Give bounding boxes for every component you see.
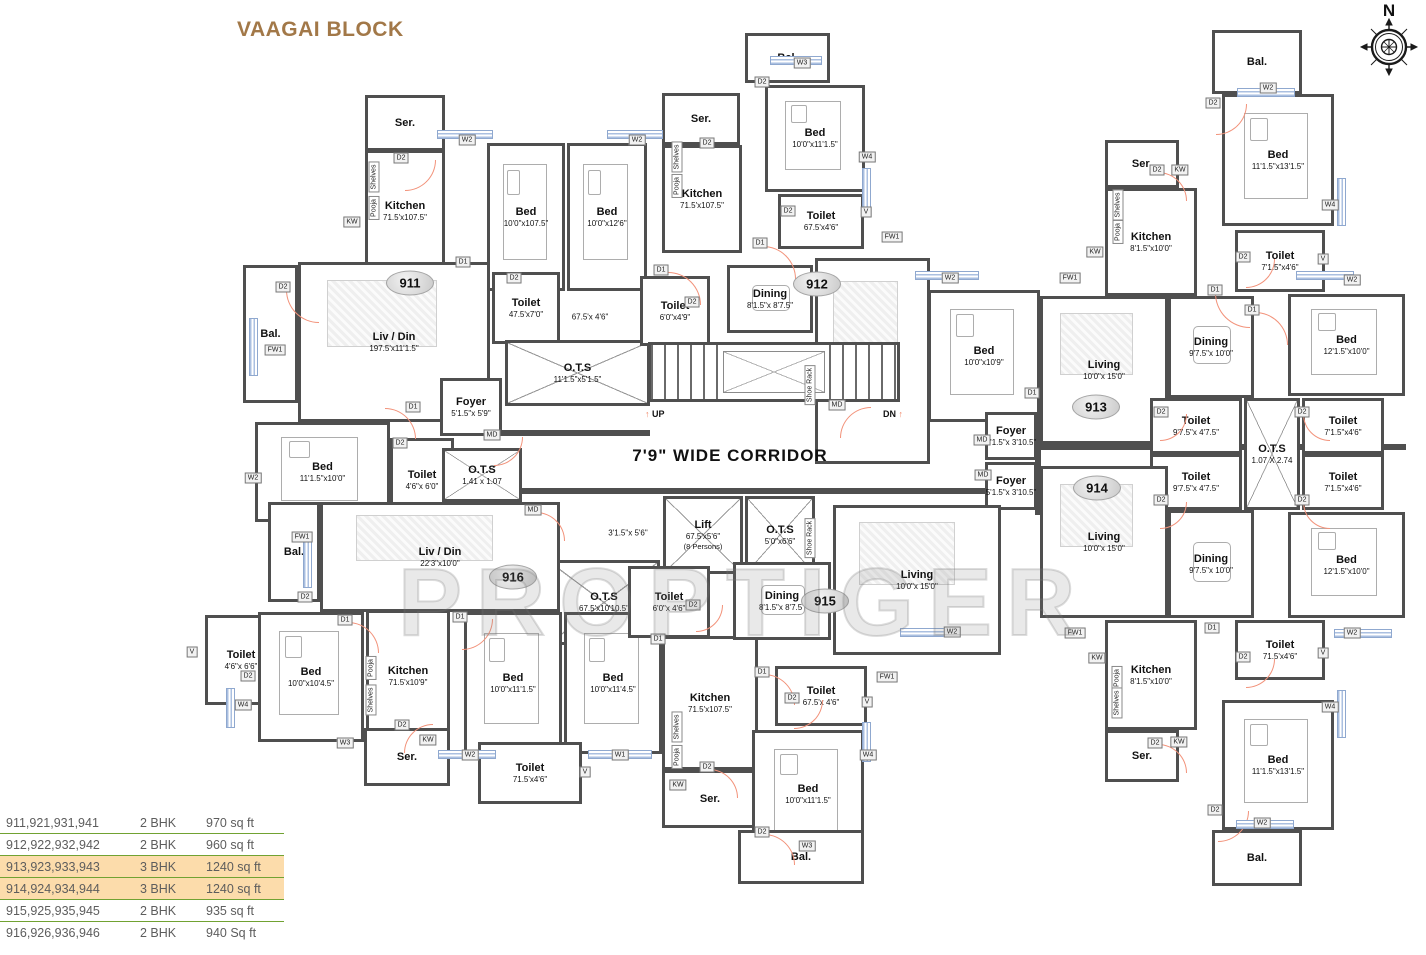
door-tag-w2: W2 [462,750,479,761]
door-tag-md: MD [525,505,542,516]
legend-area: 940 Sq ft [206,926,290,940]
window [249,318,258,376]
room-name: O.T.S [564,362,592,375]
room-dimensions: 67.5'x5'6" [686,532,720,542]
door-tag-d2: D2 [393,438,408,449]
room-name: Kitchen [690,692,730,705]
unit-number-913: 913 [1072,395,1120,420]
room-name: Foyer [456,396,486,409]
door-tag-d2: D2 [298,592,313,603]
fixture-label-shelves: Shelves [366,685,377,716]
door-tag-md: MD [829,400,846,411]
door-tag-d1: D1 [1208,285,1223,296]
room-bal: Bal. [738,830,864,884]
room-name: Bed [603,672,624,685]
unit-number-912: 912 [793,272,841,297]
room-name: Toilet [1266,639,1295,652]
door-tag-fw1: FW1 [1065,628,1086,639]
legend-units: 916,926,936,946 [6,926,140,940]
unit-number-915: 915 [801,589,849,614]
fixture-label-shoe-rack: Shoe Rack [805,518,816,558]
door-tag-fw1: FW1 [882,232,903,243]
room-dimensions: 9'7.5"x 4'7.5" [1173,484,1219,494]
room-dimensions: 12'1.5"x10'0" [1323,347,1369,357]
door-tag-d1: D1 [1245,305,1260,316]
fixture-label-shelves: Shelves [672,712,683,743]
room-name: Bal. [1247,852,1267,865]
door-tag-w2: W2 [942,273,959,284]
room-lift: Lift67.5'x5'6"(8 Persons) [663,496,743,574]
room-name: Ser. [1132,750,1152,763]
up-arrow-icon: ↑ [645,409,650,419]
fixture-label-pooja: Pooja [366,656,377,680]
room-dimensions: 10'0"x10'9" [964,358,1003,368]
door-tag-d2: D2 [1236,652,1251,663]
room-dimensions: 8'1.5"x 8'7.5" [759,603,805,613]
door-tag-w4: W4 [1322,200,1339,211]
room-bed: Bed10'0"x12'6" [567,143,647,291]
fixture-label-pooja: Pooja [369,196,380,220]
door-tag-w4: W4 [859,152,876,163]
door-tag-d2: D2 [1208,805,1223,816]
door-tag-d2: D2 [276,282,291,293]
room-name: Liv / Din [373,331,416,344]
room-name: Kitchen [1131,664,1171,677]
room-bal: Bal. [1212,30,1302,94]
room-name: Ser. [691,113,711,126]
legend-type: 3 BHK [140,860,206,874]
room-dimensions: 5'1.5"x 3'10.5" [986,488,1037,498]
door-tag-kw: KW [419,735,436,746]
room-bed: Bed10'0"x11'1.5" [765,85,865,192]
room-dimensions: 10'0"x11'4.5" [590,685,636,695]
door-tag-kw: KW [1170,737,1187,748]
door-tag-d2: D2 [700,138,715,149]
room-living: Living10'0"x 15'0" [1040,296,1168,444]
door-tag-d2: D2 [700,762,715,773]
room-name: Kitchen [385,200,425,213]
fixture-label-pooja: Pooja [672,174,683,198]
legend-units: 915,925,935,945 [6,904,140,918]
staircase: ↑ UP DN ↑ [648,342,900,402]
room-dimensions: 5'0"x6'6" [765,537,796,547]
door-tag-d2: D2 [1150,165,1165,176]
room-o-t-s: O.T.S11'1.5"x5'1.5" [505,340,650,406]
door-tag-kw: KW [1086,247,1103,258]
door-tag-d1: D1 [453,612,468,623]
window [303,540,312,588]
door-tag-d2: D2 [755,77,770,88]
door-tag-w2: W2 [629,135,646,146]
door-tag-d2: D2 [1206,98,1221,109]
room-dimensions: 6'0"x4'9" [660,313,691,323]
unit-number-916: 916 [489,565,537,590]
door-tag-w2: W2 [944,627,961,638]
legend-row: 915,925,935,9452 BHK935 sq ft [0,900,284,922]
room-name: Toilet [1329,415,1358,428]
room-bed: Bed10'0"x107.5" [487,143,565,291]
room-name: Kitchen [388,665,428,678]
room-dimensions: 5'1.5"x 3'10.5" [986,438,1037,448]
door-tag-w4: W4 [235,700,252,711]
door-tag-d1: D1 [654,265,669,276]
stairs-up-label: ↑ UP [643,409,667,419]
room-dimensions: 71.5'x10'9" [389,678,428,688]
door-tag-w2: W2 [459,135,476,146]
room-name: Living [901,569,933,582]
room-dimensions: 11'1.5"x13'1.5" [1252,767,1304,777]
room-dimensions: 4'6"x 6'0" [406,482,439,492]
window [1337,690,1346,738]
door-tag-d2: D2 [395,720,410,731]
dim-label: 3'1.5"x 5'6" [608,529,647,538]
door-tag-v: V [861,207,872,218]
room-dimensions: 9'7.5"x 10'0" [1189,566,1233,576]
legend-table: 911,921,931,9412 BHK970 sq ft912,922,932… [0,812,284,943]
room-name: Ser. [395,117,415,130]
room-name: Toilet [655,591,684,604]
room-name: Toilet [1182,471,1211,484]
door-tag-kw: KW [1171,165,1188,176]
door-tag-d2: D2 [781,206,796,217]
room-bed: Bed12'1.5"x10'0" [1288,294,1405,396]
room-dimensions: 5'1.5"x 5'9" [451,409,490,419]
room-dimensions: 11'1.5"x10'0" [300,474,346,484]
room-name: Toilet [807,210,836,223]
door-tag-d1: D1 [456,257,471,268]
room-foyer: Foyer5'1.5"x 3'10.5" [985,412,1037,460]
room-name: Bal. [260,328,280,341]
door-arc-icon [1158,172,1187,201]
wall [522,488,1040,494]
room-name: Bed [1268,149,1289,162]
door-tag-d2: D2 [1295,407,1310,418]
door-tag-w3: W3 [794,58,811,69]
window [1334,629,1392,638]
room-name: Dining [753,288,787,301]
door-tag-d1: D1 [1025,388,1040,399]
room-liv-din: Liv / Din22'3"x10'0" [320,502,560,612]
door-tag-d2: D2 [1154,495,1169,506]
room-dimensions: 10'0"x11'1.5" [785,796,831,806]
door-tag-d2: D2 [507,273,522,284]
door-tag-d2: D2 [394,153,409,164]
room-name: Bed [516,206,537,219]
room-dimensions: 71.5'x4'6" [513,775,547,785]
room-name: Foyer [996,475,1026,488]
room-name: Dining [1194,553,1228,566]
room-dimensions: 71.5'x107.5" [383,213,427,223]
room-dimensions: 1.07 X 2.74 [1252,456,1293,466]
legend-row: 916,926,936,9462 BHK940 Sq ft [0,922,284,943]
door-tag-md: MD [484,430,501,441]
fixture-label-shoe-rack: Shoe Rack [805,365,816,405]
door-arc-icon [1255,312,1288,345]
room-name: O.T.S [1258,443,1286,456]
fixture-label-pooja: Pooja [672,745,683,769]
fixture-label-pooja: Pooja [1112,666,1123,690]
door-tag-d1: D1 [406,402,421,413]
legend-units: 913,923,933,943 [6,860,140,874]
room-bal: Bal. [268,502,320,602]
room-dimensions: 10'0"x11'1.5" [792,140,838,150]
door-tag-w4: W4 [1322,702,1339,713]
door-tag-d2: D2 [785,693,800,704]
door-arc-icon [1246,659,1275,688]
room-dimensions: 6'0"x 4'6" [653,604,686,614]
room-name: Toilet [408,469,437,482]
legend-area: 960 sq ft [206,838,290,852]
room-dimensions: 8'1.5"x10'0" [1130,677,1172,687]
legend-type: 2 BHK [140,816,206,830]
room-o-t-s: O.T.S1.07 X 2.74 [1244,398,1300,510]
room-name: O.T.S [590,591,618,604]
room-foyer: Foyer5'1.5"x 3'10.5" [985,462,1037,510]
room-dimensions: 10'0"x 15'0" [896,582,938,592]
room-dimensions: 1.41 x 1.07 [462,477,502,487]
door-tag-d2: D2 [1154,407,1169,418]
door-tag-w3: W3 [799,841,816,852]
door-tag-md: MD [975,470,992,481]
room-name: Dining [765,590,799,603]
room-dimensions: 22'3"x10'0" [420,559,459,569]
room-dimensions: 8'1.5"x10'0" [1130,244,1172,254]
room-name: Liv / Din [419,546,462,559]
door-tag-w2: W2 [1344,628,1361,639]
window [226,688,235,728]
room-bed: Bed10'0"x10'9" [928,290,1040,422]
room-dimensions: 10'0"x107.5" [504,219,549,229]
room-dimensions: 10'0"x 15'0" [1083,372,1125,382]
door-tag-v: V [1318,648,1329,659]
door-tag-d2: D2 [1148,738,1163,749]
room-dimensions: 10'0"x 15'0" [1083,544,1125,554]
window [1337,178,1346,226]
room-name: O.T.S [468,464,496,477]
room-name: Toilet [1329,471,1358,484]
room-name: O.T.S [766,524,794,537]
room-name: Kitchen [1131,231,1171,244]
fixture-label-shelves: Shelves [672,142,683,173]
room-name: Living [1088,359,1120,372]
legend-units: 912,922,932,942 [6,838,140,852]
legend-type: 2 BHK [140,904,206,918]
fixture-label-pooja: Pooja [1113,220,1124,244]
room-name: Bed [1336,334,1357,347]
room-name: Bed [301,666,322,679]
floor-plan-page: VAAGAI BLOCK N [0,0,1426,955]
down-arrow-icon: ↑ [899,409,904,419]
legend-type: 3 BHK [140,882,206,896]
door-tag-d2: D2 [241,671,256,682]
room-dimensions: 67.5'x4'6" [804,223,838,233]
room-dimensions: 47.5'x7'0" [509,310,543,320]
legend-area: 1240 sq ft [206,860,290,874]
door-tag-d2: D2 [755,827,770,838]
legend-area: 935 sq ft [206,904,290,918]
room-toilet: Toilet47.5'x7'0" [492,272,560,344]
room-toilet: Toilet67.5'x4'6" [778,194,864,249]
fixture-label-shelves: Shelves [1113,190,1124,221]
room-dimensions: 12'1.5"x10'0" [1323,567,1369,577]
room-dimensions: 11'1.5"x13'1.5" [1252,162,1304,172]
door-tag-d2: D2 [686,600,701,611]
room-name: Bal. [1247,56,1267,69]
room-name: Toilet [516,762,545,775]
room-dimensions: 7'1.5"x4'6" [1324,484,1361,494]
dim-label: 67.5'x 4'6" [572,313,609,322]
room-name: Lift [694,519,711,532]
legend-units: 914,924,934,944 [6,882,140,896]
legend-type: 2 BHK [140,926,206,940]
room-name: Living [1088,531,1120,544]
legend-row: 911,921,931,9412 BHK970 sq ft [0,812,284,834]
legend-units: 911,921,931,941 [6,816,140,830]
room-dimensions: 10'0"x12'6" [587,219,626,229]
room-name: Kitchen [682,188,722,201]
room-dimensions: 10'0"x11'1.5" [490,685,536,695]
stair-treads [651,345,719,399]
room-dimensions: 71.5'x107.5" [680,201,724,211]
door-tag-v: V [862,697,873,708]
room-name: Dining [1194,336,1228,349]
door-tag-fw1: FW1 [877,672,898,683]
door-tag-fw1: FW1 [265,345,286,356]
door-tag-d2: D2 [1236,252,1251,263]
room-dimensions: 10'0"x10'4.5" [288,679,334,689]
room-bed: Bed12'1.5"x10'0" [1288,512,1405,618]
door-tag-md: MD [974,435,991,446]
room-foyer: Foyer5'1.5"x 5'9" [440,378,502,436]
legend-type: 2 BHK [140,838,206,852]
room-name: Bed [1268,754,1289,767]
door-tag-w2: W2 [1260,83,1277,94]
legend-row: 913,923,933,9433 BHK1240 sq ft [0,856,284,878]
unit-number-914: 914 [1073,476,1121,501]
door-arc-icon [763,246,796,279]
legend-area: 970 sq ft [206,816,290,830]
legend-area: 1240 sq ft [206,882,290,896]
room-name: Bed [312,461,333,474]
room-name: Bed [805,127,826,140]
room-dimensions: 11'1.5"x5'1.5" [554,375,602,385]
room-name: Toilet [807,685,836,698]
unit-number-911: 911 [386,271,434,296]
door-tag-kw: KW [1088,653,1105,664]
room-dimensions: 197.5'x11'1.5" [369,344,418,354]
door-tag-v: V [1318,254,1329,265]
room-name: Foyer [996,425,1026,438]
room-ser: Ser. [365,95,445,151]
room-dimensions: 9'7.5"x 10'0" [1189,349,1233,359]
room-name: Bal. [284,546,304,559]
door-tag-v: V [580,767,591,778]
room-name: Toilet [227,649,256,662]
door-tag-w1: W1 [612,750,629,761]
door-tag-d1: D1 [753,238,768,249]
room-name: Bed [1336,554,1357,567]
room-dining: Dining9'7.5"x 10'0" [1168,510,1254,618]
legend-row: 912,922,932,9422 BHK960 sq ft [0,834,284,856]
room-name: Toilet [512,297,541,310]
door-tag-d1: D1 [755,667,770,678]
door-tag-w2: W2 [1344,275,1361,286]
room-dimensions: 71.5'x107.5" [688,705,732,715]
door-tag-v: V [187,647,198,658]
corridor-label: 7'9" WIDE CORRIDOR [505,446,955,466]
door-tag-d1: D1 [651,634,666,645]
stair-treads [829,345,897,399]
stairs-down-label: DN ↑ [881,409,905,419]
door-tag-fw1: FW1 [292,532,313,543]
room-dimensions: 8'1.5"x 8'7.5" [747,301,793,311]
door-tag-w2: W2 [245,473,262,484]
window [862,168,871,208]
room-extra: (8 Persons) [684,542,723,551]
legend-row: 914,924,934,9443 BHK1240 sq ft [0,878,284,900]
room-name: Bed [974,345,995,358]
room-name: Bed [503,672,524,685]
door-tag-w2: W2 [1254,818,1271,829]
door-tag-kw: KW [669,780,686,791]
door-tag-d1: D1 [1205,623,1220,634]
door-tag-kw: KW [343,217,360,228]
door-tag-w3: W3 [337,738,354,749]
door-tag-d2: D2 [685,297,700,308]
door-tag-d2: D2 [1295,495,1310,506]
door-arc-icon [536,512,565,541]
door-tag-d1: D1 [338,615,353,626]
wall [490,430,650,436]
fixture-label-shelves: Shelves [1112,688,1123,719]
room-name: Bed [597,206,618,219]
door-tag-fw1: FW1 [1060,273,1081,284]
room-name: Bed [798,783,819,796]
door-tag-w4: W4 [860,750,877,761]
fixture-label-shelves: Shelves [369,162,380,193]
